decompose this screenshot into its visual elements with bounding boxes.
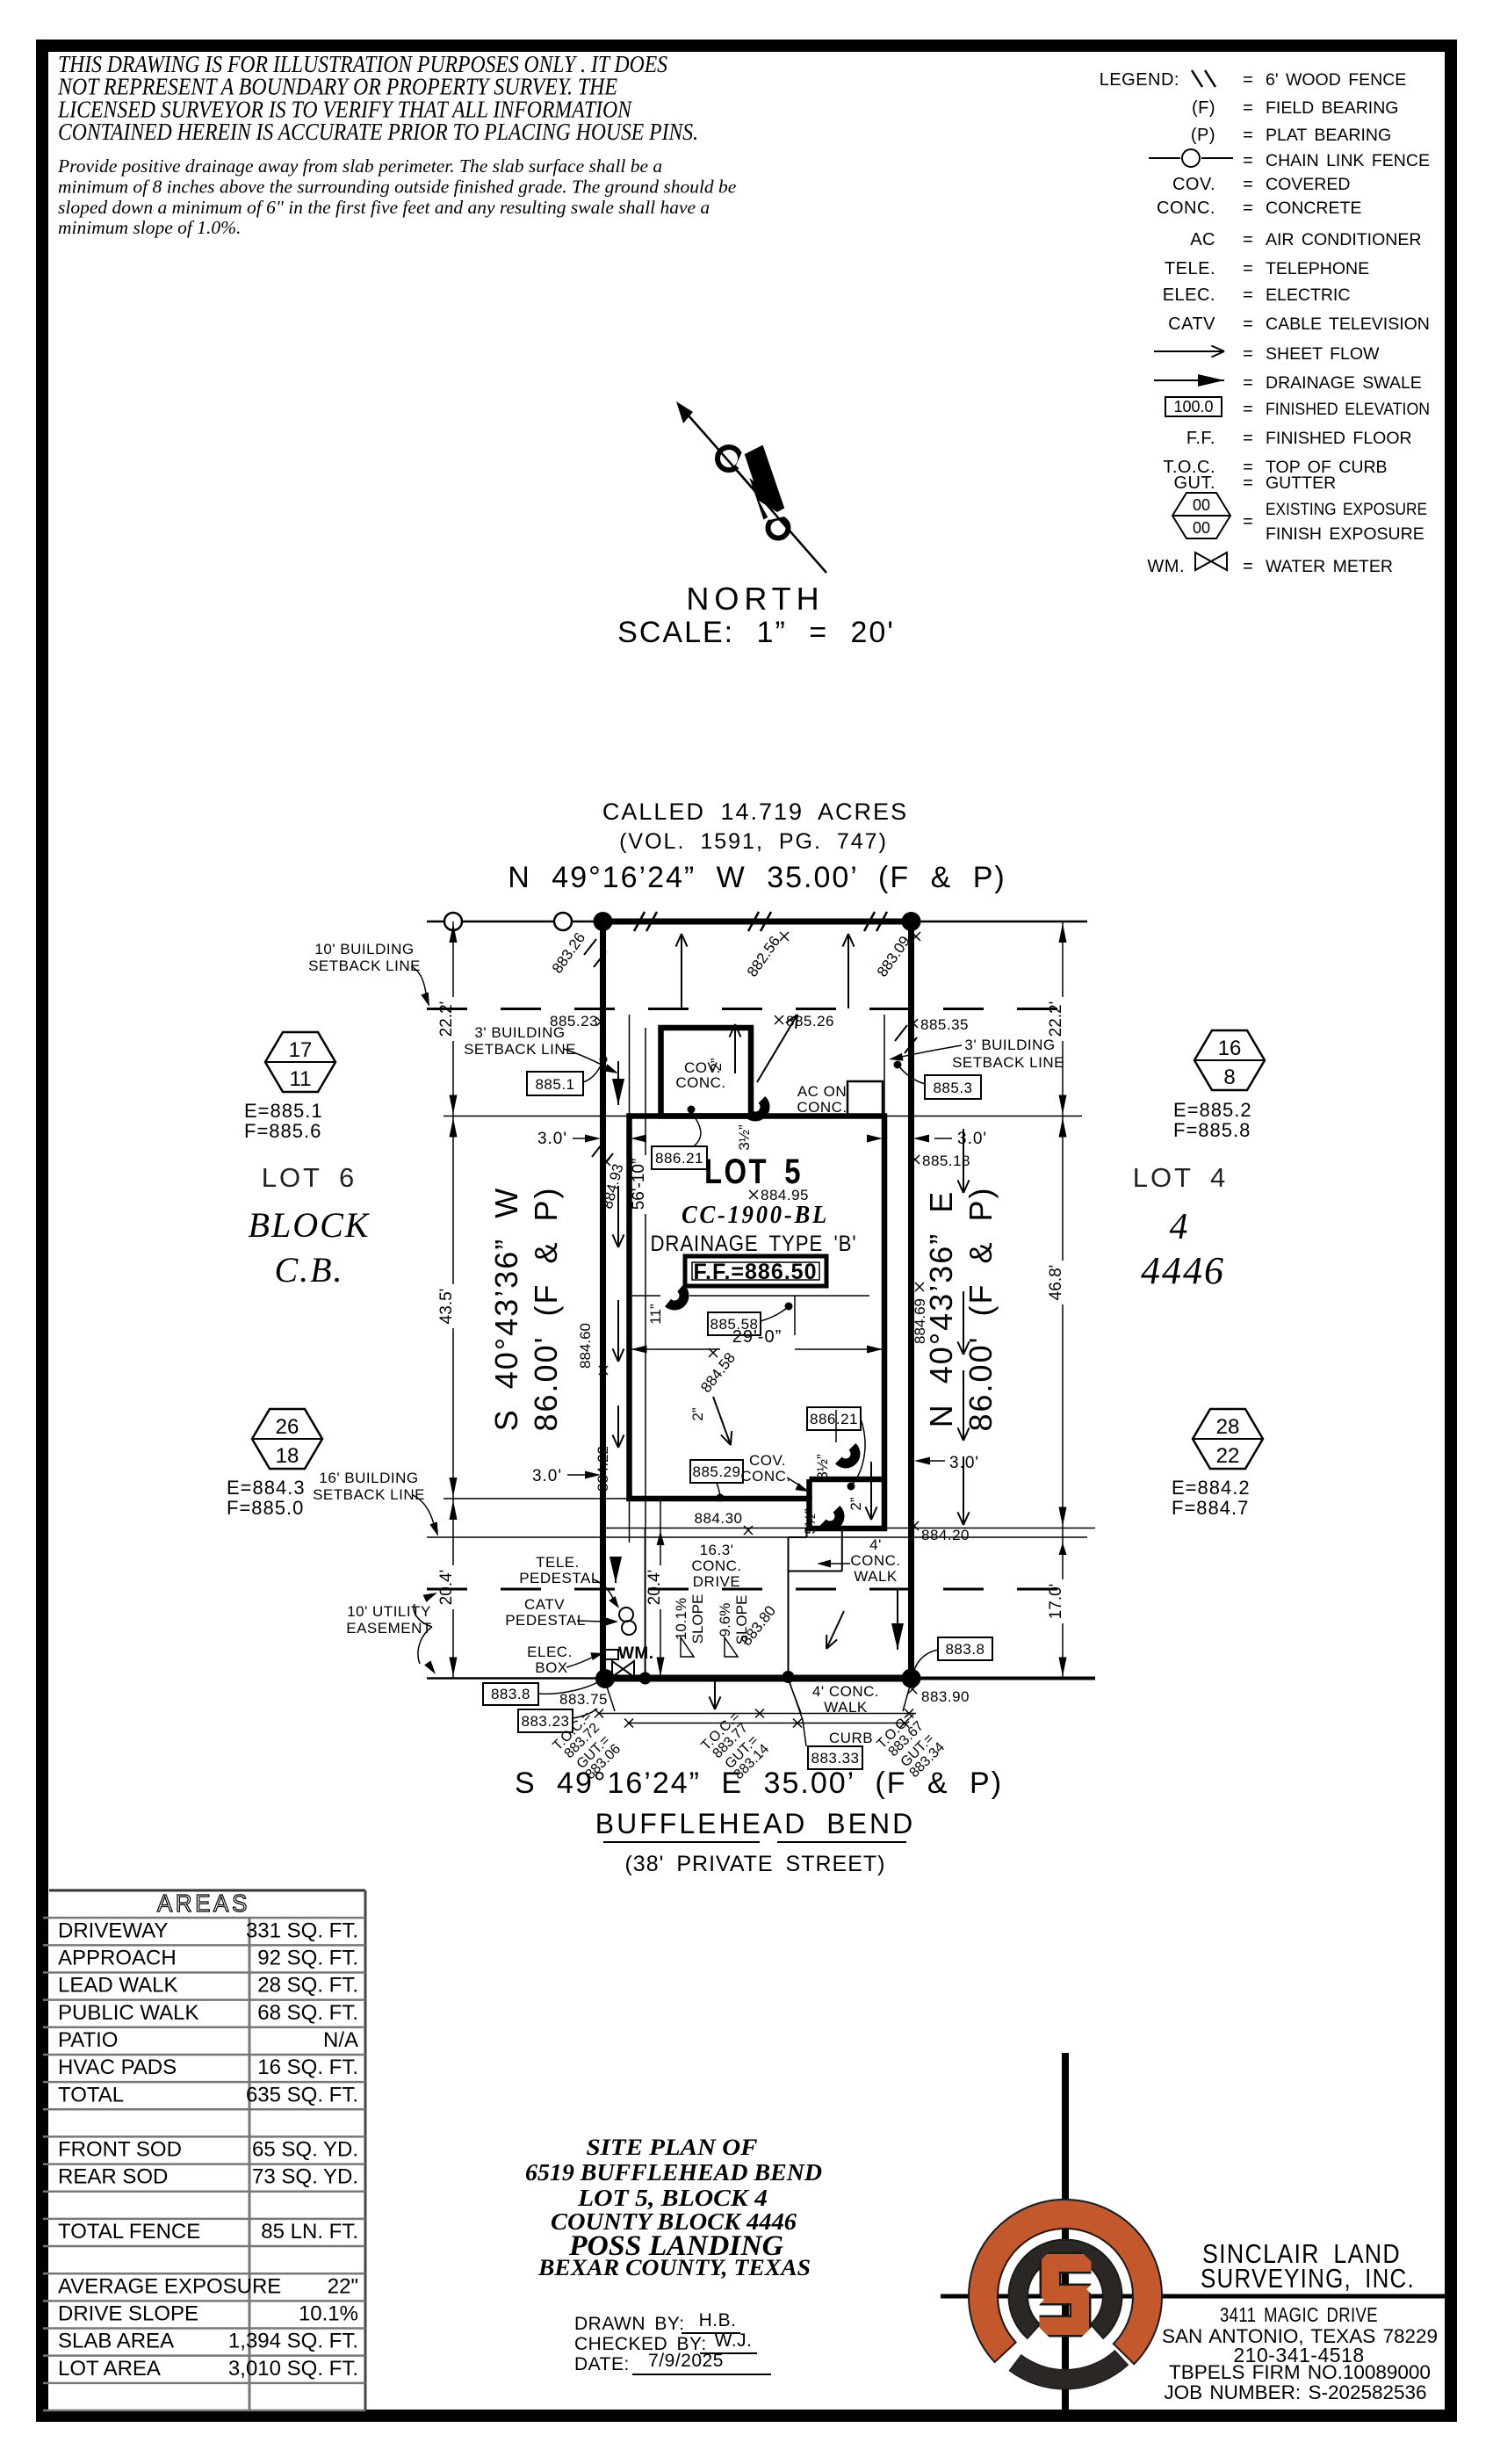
svg-text:26: 26 bbox=[276, 1415, 299, 1439]
svg-text:COV.: COV. bbox=[1172, 175, 1215, 194]
svg-text:CABLE TELEVISION: CABLE TELEVISION bbox=[1266, 314, 1430, 334]
svg-text:EXISTING EXPOSURE: EXISTING EXPOSURE bbox=[1266, 500, 1427, 519]
svg-text:884.58: 884.58 bbox=[697, 1349, 739, 1396]
svg-text:331 SQ. FT.: 331 SQ. FT. bbox=[246, 1918, 358, 1942]
svg-text:BEXAR COUNTY, TEXAS: BEXAR COUNTY, TEXAS bbox=[537, 2255, 811, 2280]
svg-text:FRONT SOD: FRONT SOD bbox=[58, 2138, 182, 2162]
svg-text:4': 4' bbox=[869, 1536, 882, 1553]
svg-text:884.30: 884.30 bbox=[695, 1510, 743, 1527]
svg-text:BLOCK: BLOCK bbox=[249, 1205, 371, 1245]
svg-text:=: = bbox=[1243, 98, 1253, 118]
svg-text:FINISHED FLOOR: FINISHED FLOOR bbox=[1266, 429, 1412, 448]
svg-text:PLAT BEARING: PLAT BEARING bbox=[1266, 126, 1391, 145]
svg-text:883.33: 883.33 bbox=[811, 1750, 860, 1767]
svg-text:ELEC.: ELEC. bbox=[527, 1644, 573, 1660]
svg-text:CONC.: CONC. bbox=[675, 1074, 725, 1091]
svg-text:2”: 2” bbox=[689, 1407, 706, 1420]
svg-text:3,010 SQ. FT.: 3,010 SQ. FT. bbox=[228, 2357, 358, 2381]
svg-text:JOB NUMBER: S-202582536: JOB NUMBER: S-202582536 bbox=[1164, 2381, 1426, 2403]
svg-text:883.90: 883.90 bbox=[921, 1688, 970, 1705]
svg-text:LOT AREA: LOT AREA bbox=[58, 2357, 161, 2381]
svg-text:883.23: 883.23 bbox=[522, 1713, 570, 1730]
svg-text:3½”: 3½” bbox=[736, 1124, 753, 1151]
svg-text:AREAS: AREAS bbox=[157, 1890, 250, 1917]
svg-text:DRAINAGE TYPE 'B': DRAINAGE TYPE 'B' bbox=[651, 1232, 857, 1256]
svg-text:WALK: WALK bbox=[854, 1568, 898, 1585]
svg-text:3.0': 3.0' bbox=[957, 1130, 987, 1148]
svg-text:CONC.: CONC. bbox=[850, 1552, 900, 1569]
svg-text:LOT 6: LOT 6 bbox=[262, 1162, 357, 1193]
svg-text:10' BUILDING: 10' BUILDING bbox=[314, 941, 414, 957]
svg-text:883.8: 883.8 bbox=[491, 1686, 530, 1702]
svg-text:PUBLIC WALK: PUBLIC WALK bbox=[58, 2001, 199, 2025]
svg-text:COVERED: COVERED bbox=[1266, 175, 1350, 194]
svg-text:92 SQ. FT.: 92 SQ. FT. bbox=[257, 1946, 358, 1969]
svg-text:F=885.6: F=885.6 bbox=[244, 1120, 321, 1142]
svg-text:=: = bbox=[1243, 557, 1253, 576]
svg-text:DRAINAGE SWALE: DRAINAGE SWALE bbox=[1266, 373, 1422, 393]
svg-text:(VOL. 1591, PG. 747): (VOL. 1591, PG. 747) bbox=[619, 829, 888, 854]
svg-text:DRIVE SLOPE: DRIVE SLOPE bbox=[58, 2302, 198, 2326]
svg-text:22: 22 bbox=[1216, 1444, 1240, 1468]
svg-text:ELECTRIC: ELECTRIC bbox=[1266, 285, 1350, 305]
svg-text:CONC.: CONC. bbox=[797, 1099, 847, 1116]
svg-text:6519 BUFFLEHEAD BEND: 6519 BUFFLEHEAD BEND bbox=[525, 2159, 822, 2186]
svg-text:W.J.: W.J. bbox=[715, 2330, 753, 2351]
svg-text:PEDESTAL: PEDESTAL bbox=[519, 1570, 600, 1586]
svg-text:86.00' (F & P): 86.00' (F & P) bbox=[963, 1187, 999, 1432]
svg-text:884.60: 884.60 bbox=[577, 1323, 594, 1369]
svg-text:SITE PLAN OF: SITE PLAN OF bbox=[587, 2135, 758, 2160]
svg-text:3' BUILDING: 3' BUILDING bbox=[964, 1037, 1055, 1053]
svg-text:HVAC PADS: HVAC PADS bbox=[58, 2056, 177, 2079]
svg-text:C.B.: C.B. bbox=[274, 1250, 343, 1290]
svg-text:SETBACK LINE: SETBACK LINE bbox=[464, 1041, 576, 1058]
svg-text:TOTAL: TOTAL bbox=[58, 2083, 124, 2106]
svg-text:sloped down a minimum of 6" in: sloped down a minimum of 6" in the first… bbox=[58, 197, 710, 218]
svg-text:16.3': 16.3' bbox=[700, 1542, 734, 1558]
svg-text:=: = bbox=[1243, 473, 1253, 493]
svg-text:9.6%: 9.6% bbox=[717, 1603, 733, 1637]
svg-text:N 40°43’36” E: N 40°43’36” E bbox=[923, 1190, 959, 1428]
svg-text:N 49°16’24” W 35.00’ (F & P): N 49°16’24” W 35.00’ (F & P) bbox=[508, 861, 1006, 894]
svg-text:SLAB AREA: SLAB AREA bbox=[58, 2330, 174, 2353]
svg-text:=: = bbox=[1243, 126, 1253, 145]
svg-text:7/9/2025: 7/9/2025 bbox=[648, 2351, 724, 2371]
svg-text:4: 4 bbox=[1170, 1207, 1188, 1247]
svg-text:REAR SOD: REAR SOD bbox=[58, 2165, 168, 2189]
svg-text:=: = bbox=[1243, 429, 1253, 448]
svg-text:2”: 2” bbox=[847, 1497, 864, 1510]
svg-text:3.0': 3.0' bbox=[532, 1467, 562, 1485]
svg-text:E=885.2: E=885.2 bbox=[1173, 1099, 1252, 1121]
svg-text:00: 00 bbox=[1193, 496, 1210, 514]
svg-text:GUTTER: GUTTER bbox=[1266, 473, 1336, 493]
svg-text:11: 11 bbox=[290, 1067, 312, 1091]
svg-text:CONC.: CONC. bbox=[1157, 199, 1215, 218]
svg-text:WM.: WM. bbox=[618, 1644, 654, 1663]
svg-text:AC ON: AC ON bbox=[797, 1083, 847, 1100]
svg-text:DATE:: DATE: bbox=[574, 2354, 630, 2374]
svg-text:=: = bbox=[1243, 70, 1253, 90]
svg-text:2”: 2” bbox=[708, 1058, 725, 1071]
svg-text:635 SQ. FT.: 635 SQ. FT. bbox=[246, 2083, 358, 2106]
svg-text:Provide positive drainage away: Provide positive drainage away from slab… bbox=[57, 155, 662, 177]
svg-text:65 SQ. YD.: 65 SQ. YD. bbox=[252, 2138, 358, 2162]
svg-text:N/A: N/A bbox=[323, 2028, 358, 2052]
svg-text:10' UTILITY: 10' UTILITY bbox=[347, 1603, 431, 1620]
svg-text:E=884.3: E=884.3 bbox=[227, 1477, 306, 1499]
svg-text:73 SQ. YD.: 73 SQ. YD. bbox=[252, 2165, 358, 2189]
svg-text:56'-10”: 56'-10” bbox=[630, 1159, 648, 1210]
svg-text:PATIO: PATIO bbox=[58, 2028, 118, 2052]
svg-text:AIR CONDITIONER: AIR CONDITIONER bbox=[1266, 230, 1421, 249]
svg-text:TELE.: TELE. bbox=[1165, 259, 1215, 278]
svg-text:18: 18 bbox=[276, 1444, 299, 1468]
svg-text:5½”: 5½” bbox=[802, 1508, 819, 1535]
svg-text:4446: 4446 bbox=[1141, 1249, 1225, 1292]
svg-text:885.1: 885.1 bbox=[535, 1076, 574, 1093]
svg-text:LEGEND:: LEGEND: bbox=[1100, 70, 1179, 90]
svg-text:WALK: WALK bbox=[824, 1699, 868, 1716]
svg-text:APPROACH: APPROACH bbox=[58, 1946, 177, 1969]
svg-text:=: = bbox=[1243, 285, 1253, 305]
svg-text:F=885.8: F=885.8 bbox=[1173, 1119, 1251, 1141]
svg-text:BOX: BOX bbox=[535, 1659, 567, 1676]
svg-text:PEDESTAL: PEDESTAL bbox=[505, 1612, 586, 1629]
svg-text:CC-1900-BL: CC-1900-BL bbox=[682, 1201, 829, 1229]
svg-text:28: 28 bbox=[1216, 1415, 1240, 1439]
svg-text:CATV: CATV bbox=[1168, 314, 1215, 334]
svg-text:=: = bbox=[1243, 344, 1253, 364]
svg-text:883.75: 883.75 bbox=[559, 1691, 608, 1708]
svg-text:E=885.1: E=885.1 bbox=[244, 1100, 323, 1122]
svg-text:SCALE: 1” = 20': SCALE: 1” = 20' bbox=[617, 616, 895, 649]
svg-text:S 40°43’36” W: S 40°43’36” W bbox=[488, 1187, 524, 1432]
svg-text:883.8: 883.8 bbox=[945, 1641, 985, 1658]
svg-text:DRIVE: DRIVE bbox=[693, 1573, 740, 1590]
svg-text:22.2': 22.2' bbox=[437, 1001, 456, 1037]
svg-text:68 SQ. FT.: 68 SQ. FT. bbox=[257, 2001, 358, 2025]
svg-text:46.8': 46.8' bbox=[1047, 1265, 1065, 1301]
svg-text:16: 16 bbox=[1218, 1037, 1242, 1060]
svg-text:WATER METER: WATER METER bbox=[1266, 557, 1393, 576]
svg-text:86.00' (F & P): 86.00' (F & P) bbox=[528, 1187, 564, 1432]
svg-text:(F): (F) bbox=[1192, 98, 1215, 118]
svg-text:WM.: WM. bbox=[1147, 557, 1185, 576]
svg-text:SETBACK LINE: SETBACK LINE bbox=[313, 1486, 425, 1503]
svg-text:COV.: COV. bbox=[749, 1452, 786, 1469]
svg-text:SLOPE: SLOPE bbox=[689, 1594, 706, 1644]
svg-text:LOT 4: LOT 4 bbox=[1133, 1162, 1229, 1193]
svg-text:43.5': 43.5' bbox=[437, 1289, 456, 1325]
svg-text:22.2': 22.2' bbox=[1047, 1001, 1065, 1037]
svg-text:CONC.: CONC. bbox=[740, 1468, 790, 1485]
svg-text:16 SQ. FT.: 16 SQ. FT. bbox=[257, 2056, 358, 2079]
svg-text:22": 22" bbox=[328, 2274, 358, 2298]
svg-text:00: 00 bbox=[1193, 519, 1210, 537]
svg-text:28 SQ. FT.: 28 SQ. FT. bbox=[257, 1974, 358, 1998]
svg-text:LOT 5: LOT 5 bbox=[704, 1153, 803, 1191]
svg-text:CHAIN LINK FENCE: CHAIN LINK FENCE bbox=[1266, 151, 1430, 170]
svg-text:4' CONC.: 4' CONC. bbox=[812, 1683, 879, 1700]
svg-text:885.35: 885.35 bbox=[920, 1016, 969, 1033]
svg-text:10.1%: 10.1% bbox=[673, 1598, 689, 1640]
svg-text:3.0': 3.0' bbox=[537, 1130, 567, 1148]
svg-text:minimum of 8 inches above the: minimum of 8 inches above the surroundin… bbox=[58, 176, 737, 197]
svg-text:3.0': 3.0' bbox=[949, 1454, 979, 1472]
svg-text:16' BUILDING: 16' BUILDING bbox=[319, 1470, 418, 1486]
svg-text:F.F.: F.F. bbox=[1186, 429, 1215, 448]
svg-text:886.21: 886.21 bbox=[810, 1411, 858, 1427]
svg-text:886.21: 886.21 bbox=[655, 1150, 703, 1167]
svg-text:3' BUILDING: 3' BUILDING bbox=[474, 1024, 565, 1041]
svg-text:LEAD WALK: LEAD WALK bbox=[58, 1974, 178, 1998]
svg-text:LOT 5, BLOCK 4: LOT 5, BLOCK 4 bbox=[577, 2185, 768, 2211]
svg-text:85 LN. FT.: 85 LN. FT. bbox=[261, 2220, 358, 2244]
svg-text:=: = bbox=[1243, 373, 1253, 393]
svg-text:20.4': 20.4' bbox=[437, 1570, 456, 1606]
svg-text:3½”: 3½” bbox=[814, 1454, 831, 1480]
svg-text:FINISH EXPOSURE: FINISH EXPOSURE bbox=[1266, 524, 1424, 544]
svg-text:884.20: 884.20 bbox=[921, 1527, 970, 1543]
svg-text:6' WOOD FENCE: 6' WOOD FENCE bbox=[1266, 70, 1406, 90]
svg-text:EASEMENT: EASEMENT bbox=[346, 1620, 432, 1637]
svg-text:20.4': 20.4' bbox=[646, 1570, 664, 1606]
svg-text:=: = bbox=[1243, 151, 1253, 170]
svg-text:SETBACK LINE: SETBACK LINE bbox=[952, 1054, 1064, 1071]
svg-text:=: = bbox=[1243, 230, 1253, 249]
svg-text:=: = bbox=[1243, 512, 1253, 531]
svg-text:F.F.=886.50: F.F.=886.50 bbox=[694, 1260, 818, 1284]
svg-text:17.0': 17.0' bbox=[1047, 1584, 1065, 1620]
svg-text:=: = bbox=[1243, 175, 1253, 194]
svg-text:=: = bbox=[1243, 400, 1253, 419]
svg-text:8: 8 bbox=[1223, 1066, 1235, 1089]
svg-text:TBPELS FIRM NO.10089000: TBPELS FIRM NO.10089000 bbox=[1169, 2361, 1431, 2383]
svg-text:CATV: CATV bbox=[524, 1596, 565, 1613]
svg-text:BUFFLEHEAD BEND: BUFFLEHEAD BEND bbox=[595, 1808, 915, 1839]
svg-text:H.B.: H.B. bbox=[699, 2310, 737, 2330]
svg-text:885.29: 885.29 bbox=[693, 1463, 741, 1480]
svg-text:882.56: 882.56 bbox=[744, 933, 783, 979]
svg-text:3411 MAGIC DRIVE: 3411 MAGIC DRIVE bbox=[1220, 2303, 1378, 2326]
svg-text:TOTAL FENCE: TOTAL FENCE bbox=[58, 2220, 200, 2244]
svg-text:AC: AC bbox=[1190, 230, 1215, 249]
svg-text:=: = bbox=[1243, 199, 1253, 218]
svg-text:CALLED 14.719 ACRES: CALLED 14.719 ACRES bbox=[602, 798, 908, 825]
svg-text:1,394 SQ. FT.: 1,394 SQ. FT. bbox=[228, 2330, 358, 2353]
svg-text:=: = bbox=[1243, 314, 1253, 334]
svg-text:SHEET FLOW: SHEET FLOW bbox=[1266, 344, 1380, 364]
svg-text:DRIVEWAY: DRIVEWAY bbox=[58, 1918, 168, 1942]
svg-text:E=884.2: E=884.2 bbox=[1172, 1477, 1251, 1499]
svg-text:=: = bbox=[1243, 259, 1253, 278]
svg-text:883.26: 883.26 bbox=[549, 929, 588, 976]
svg-text:100.0: 100.0 bbox=[1173, 398, 1213, 415]
svg-text:(38' PRIVATE STREET): (38' PRIVATE STREET) bbox=[624, 1852, 885, 1876]
svg-text:FIELD BEARING: FIELD BEARING bbox=[1266, 98, 1398, 118]
svg-text:885.3: 885.3 bbox=[933, 1080, 972, 1096]
svg-text:ELEC.: ELEC. bbox=[1163, 285, 1215, 305]
svg-text:CONC.: CONC. bbox=[691, 1557, 741, 1574]
svg-text:CONCRETE: CONCRETE bbox=[1266, 199, 1361, 218]
svg-text:FINISHED ELEVATION: FINISHED ELEVATION bbox=[1266, 400, 1430, 419]
svg-text:minimum slope of 1.0%.: minimum slope of 1.0%. bbox=[58, 217, 241, 238]
svg-text:CONTAINED HEREIN IS ACCURATE P: CONTAINED HEREIN IS ACCURATE PRIOR TO PL… bbox=[58, 119, 698, 145]
svg-text:S 49°16’24” E 35.00’ (F & P): S 49°16’24” E 35.00’ (F & P) bbox=[515, 1767, 1003, 1800]
svg-text:884.22: 884.22 bbox=[595, 1446, 611, 1492]
svg-text:F=884.7: F=884.7 bbox=[1172, 1497, 1249, 1519]
svg-text:11”: 11” bbox=[647, 1304, 664, 1325]
svg-text:(P): (P) bbox=[1191, 126, 1215, 145]
svg-text:GUT.: GUT. bbox=[1173, 473, 1215, 493]
svg-text:F=885.0: F=885.0 bbox=[227, 1497, 304, 1519]
svg-text:SURVEYING, INC.: SURVEYING, INC. bbox=[1201, 2263, 1415, 2294]
svg-text:AVERAGE EXPOSURE: AVERAGE EXPOSURE bbox=[58, 2274, 281, 2298]
svg-text:TELE.: TELE. bbox=[536, 1554, 580, 1571]
svg-text:NORTH: NORTH bbox=[686, 581, 824, 617]
svg-text:885.58: 885.58 bbox=[710, 1316, 759, 1333]
svg-text:CURB: CURB bbox=[829, 1730, 873, 1746]
svg-text:SLOPE: SLOPE bbox=[733, 1595, 750, 1645]
svg-text:883.09: 883.09 bbox=[874, 933, 913, 979]
svg-text:TELEPHONE: TELEPHONE bbox=[1266, 259, 1369, 278]
svg-text:10.1%: 10.1% bbox=[299, 2302, 358, 2326]
svg-text:SETBACK LINE: SETBACK LINE bbox=[308, 957, 421, 974]
svg-text:DRAWN BY:: DRAWN BY: bbox=[574, 2314, 685, 2334]
svg-text:884.69: 884.69 bbox=[912, 1298, 928, 1344]
svg-text:17: 17 bbox=[289, 1038, 313, 1062]
